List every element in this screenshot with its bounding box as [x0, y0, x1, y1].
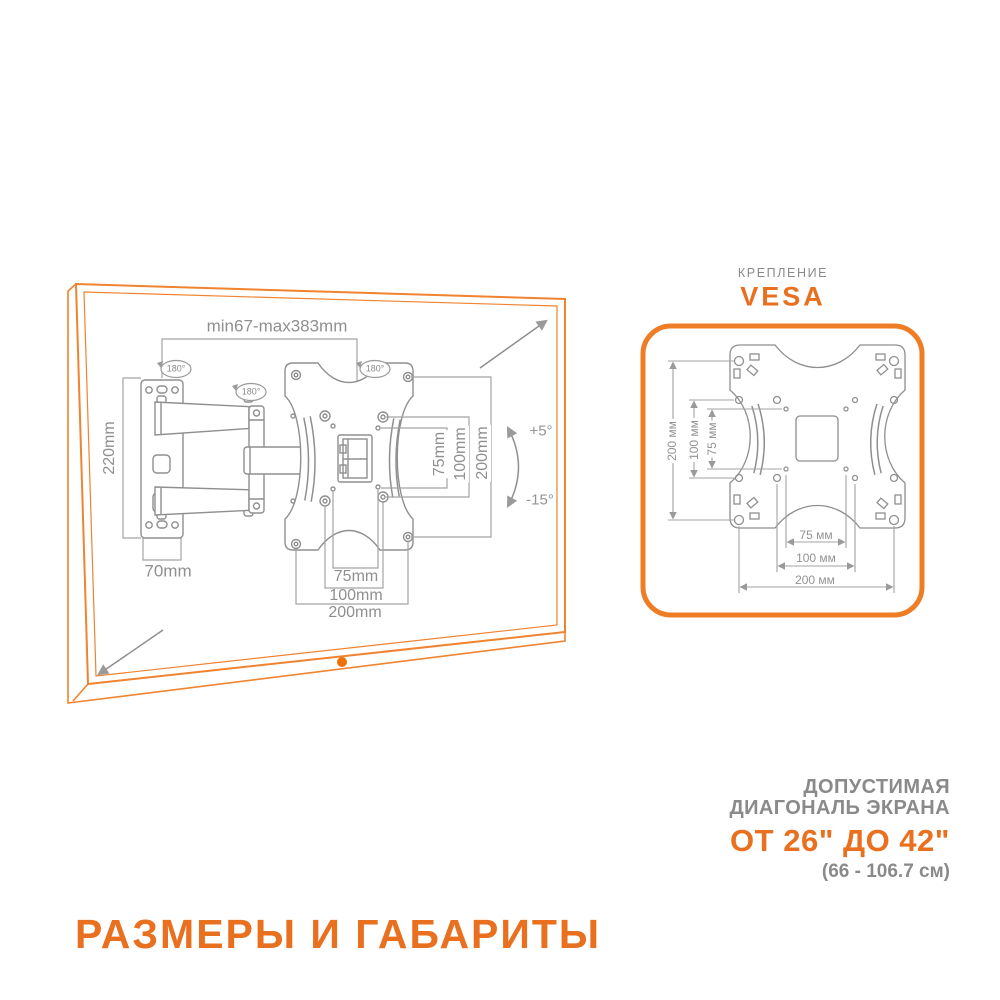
vesa-bottom-dim-75: 75 мм	[799, 529, 832, 541]
center-bracket	[338, 435, 372, 482]
page-title: РАЗМЕРЫ И ГАБАРИТЫ	[75, 911, 601, 958]
diagonal-info-line1: ДОПУСТИМАЯ	[729, 777, 950, 798]
diagonal-info-line2: ДИАГОНАЛЬ ЭКРАНА	[729, 798, 950, 819]
bottom-dim-200-label: 200mm	[328, 605, 381, 621]
power-led-dot	[337, 657, 347, 667]
vesa-bottom-dim-200: 200 мм	[795, 574, 835, 586]
vesa-left-dim-100: 100 мм	[688, 418, 700, 462]
rotation-badge-label-3: 180°	[366, 365, 385, 374]
hinge-upper	[153, 455, 170, 473]
rotation-badge-label-1: 180°	[167, 365, 186, 374]
screen-diagonal-info: ДОПУСТИМАЯ ДИАГОНАЛЬ ЭКРАНА ОТ 26" ДО 42…	[729, 777, 950, 882]
bottom-dim-75-label: 75mm	[334, 569, 378, 585]
diagonal-range-inches: ОТ 26" ДО 42"	[729, 824, 950, 858]
tilt-down-label: -15°	[526, 493, 554, 508]
wall-plate-height-label: 220mm	[102, 421, 118, 474]
vesa-left-dim-200: 200 мм	[666, 419, 678, 463]
product-infographic: { "colors": { "accent": "#E8701F", "tv_o…	[0, 0, 1000, 1000]
vesa-bottom-dim-100: 100 мм	[796, 552, 836, 564]
vesa-left-dim-75: 75 мм	[706, 420, 718, 457]
vesa-title: VESA	[740, 284, 826, 311]
vesa-plate-panel	[640, 323, 925, 618]
pivot-bolt-top	[254, 410, 260, 416]
pivot-bolt-bottom	[254, 503, 260, 509]
vesa-kicker: КРЕПЛЕНИЕ	[738, 267, 828, 280]
side-dim-100-label: 100mm	[453, 425, 469, 482]
lower-arm-bar	[155, 487, 256, 515]
extension-range-label: min67-max383mm	[207, 318, 348, 335]
tilt-up-label: +5°	[529, 424, 552, 439]
rotation-badge-label-2: 180°	[242, 388, 261, 397]
diagonal-range-cm: (66 - 106.7 см)	[729, 861, 950, 882]
side-dim-200-label: 200mm	[475, 424, 491, 481]
vesa-head-plate	[285, 363, 413, 550]
bottom-dim-100-label: 100mm	[329, 588, 382, 604]
side-dim-75-label: 75mm	[432, 430, 448, 478]
wall-depth-label: 70mm	[144, 563, 191, 580]
vesa-plate-drawing	[730, 345, 905, 528]
